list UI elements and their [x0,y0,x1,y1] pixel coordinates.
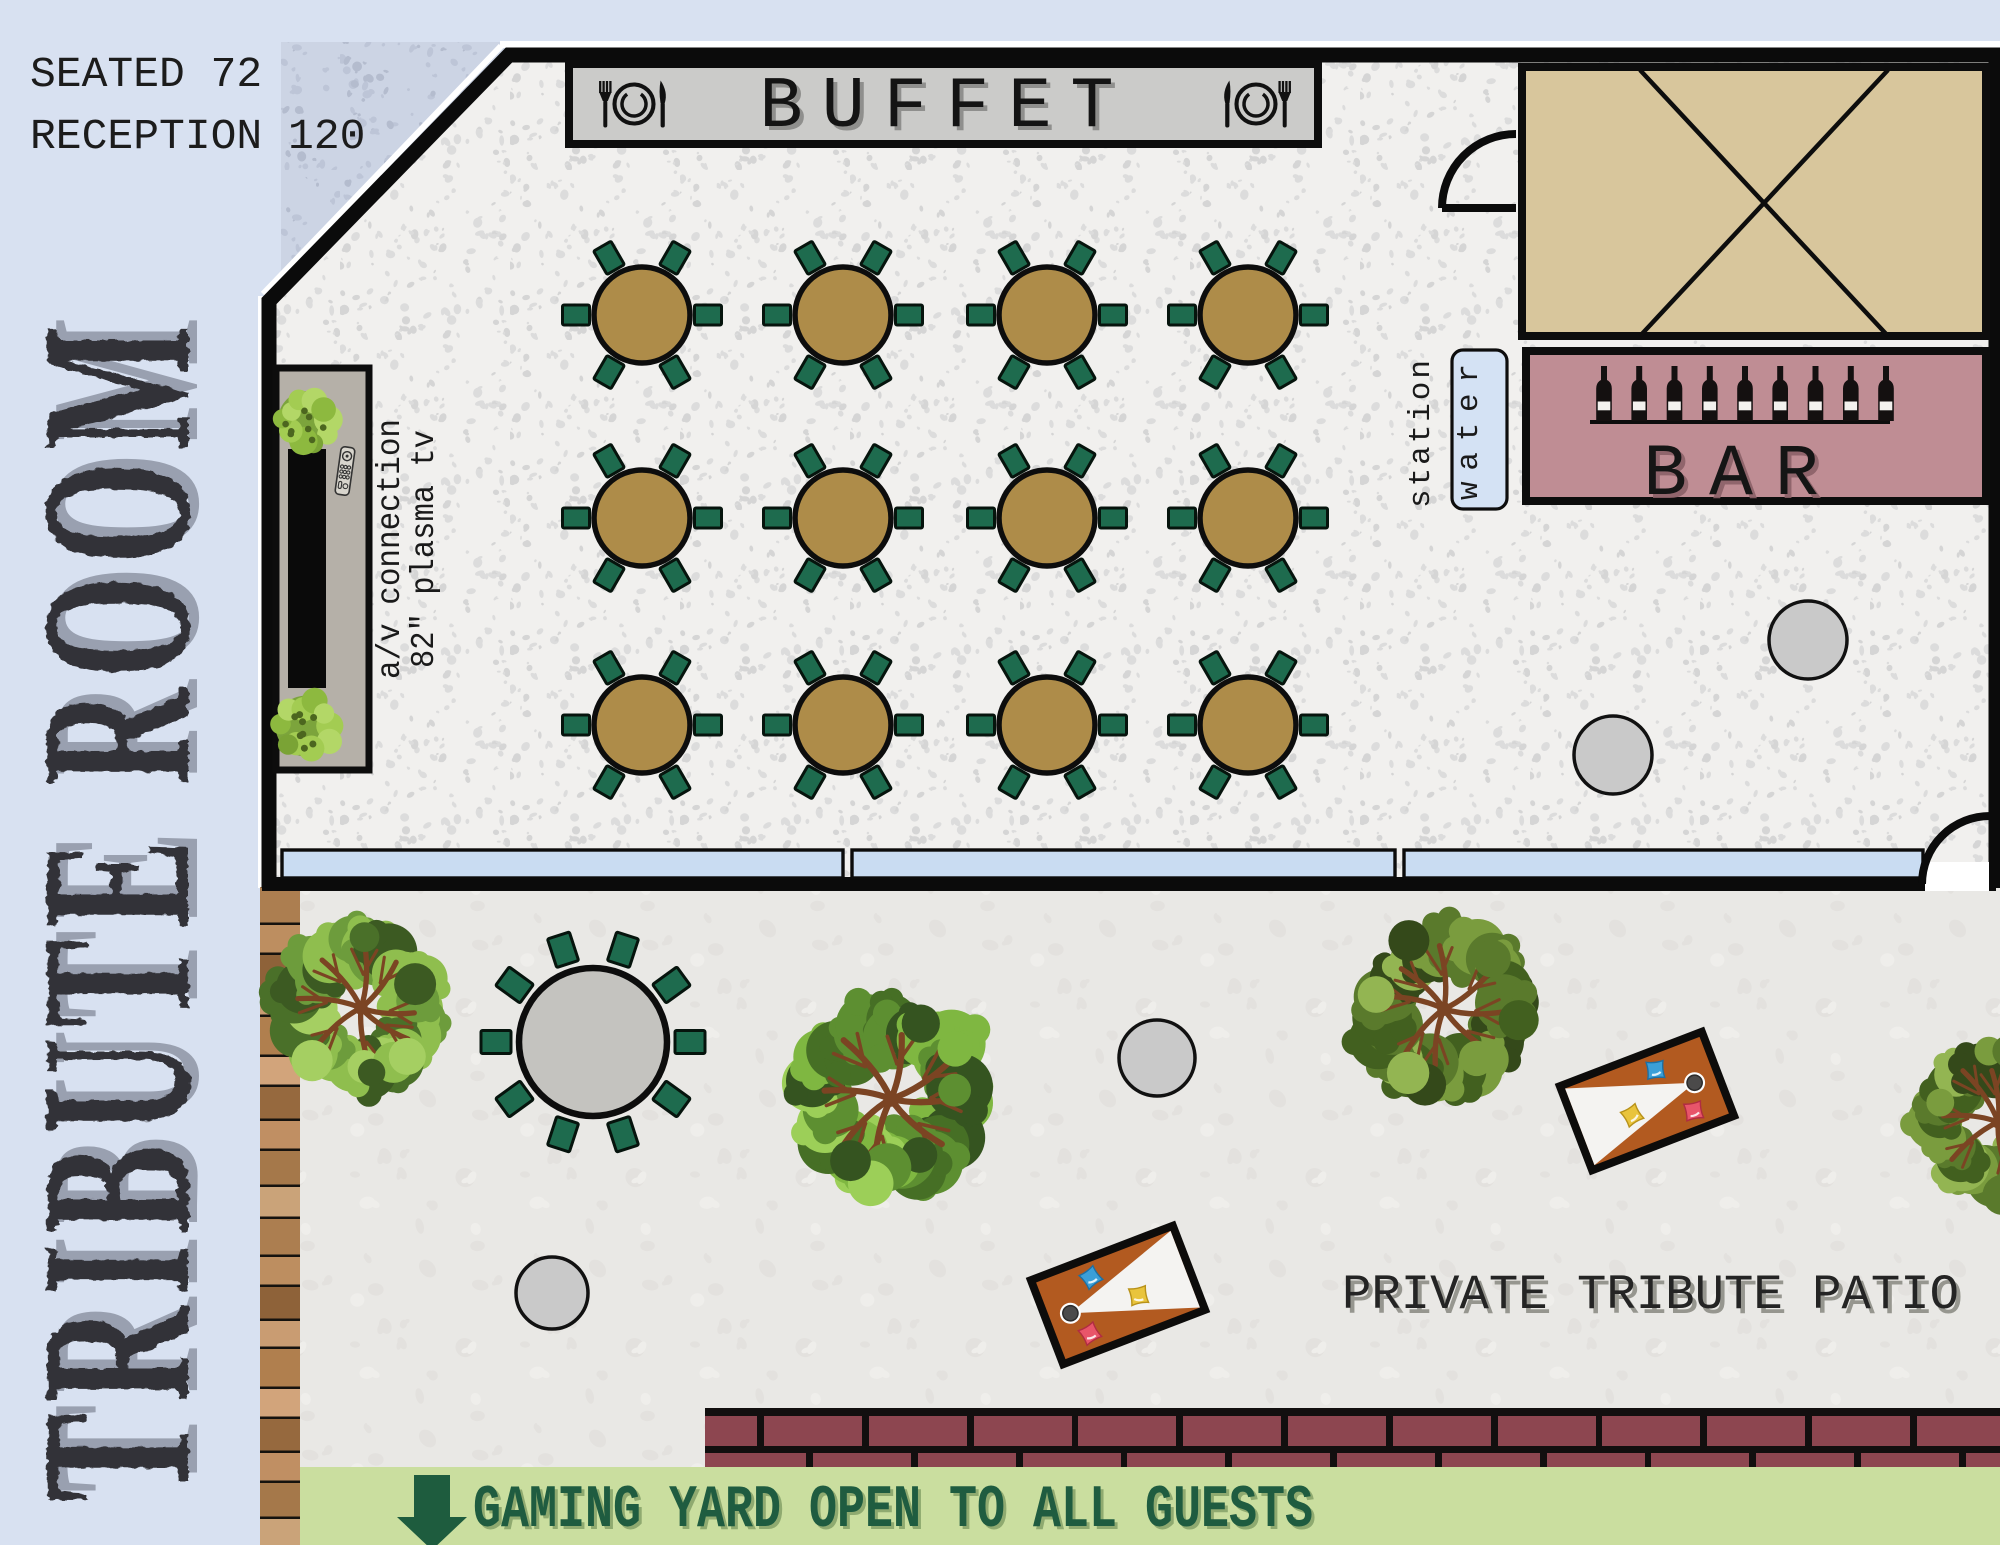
svg-text:PRIVATE TRIBUTE PATIO: PRIVATE TRIBUTE PATIO [1342,1267,1959,1323]
svg-text:BAR: BAR [1643,433,1840,516]
svg-text:BUFFET: BUFFET [759,66,1132,148]
svg-text:82" plasma tv: 82" plasma tv [406,430,443,668]
svg-text:station: station [1404,360,1439,508]
svg-text:a/v connection: a/v connection [372,419,409,679]
svg-text:GAMING YARD OPEN TO ALL GUESTS: GAMING YARD OPEN TO ALL GUESTS [473,1477,1313,1545]
svg-text:SEATED 72: SEATED 72 [30,50,262,99]
svg-text:TRIBUTE ROOM: TRIBUTE ROOM [0,314,235,1501]
svg-text:RECEPTION 120: RECEPTION 120 [30,112,365,161]
